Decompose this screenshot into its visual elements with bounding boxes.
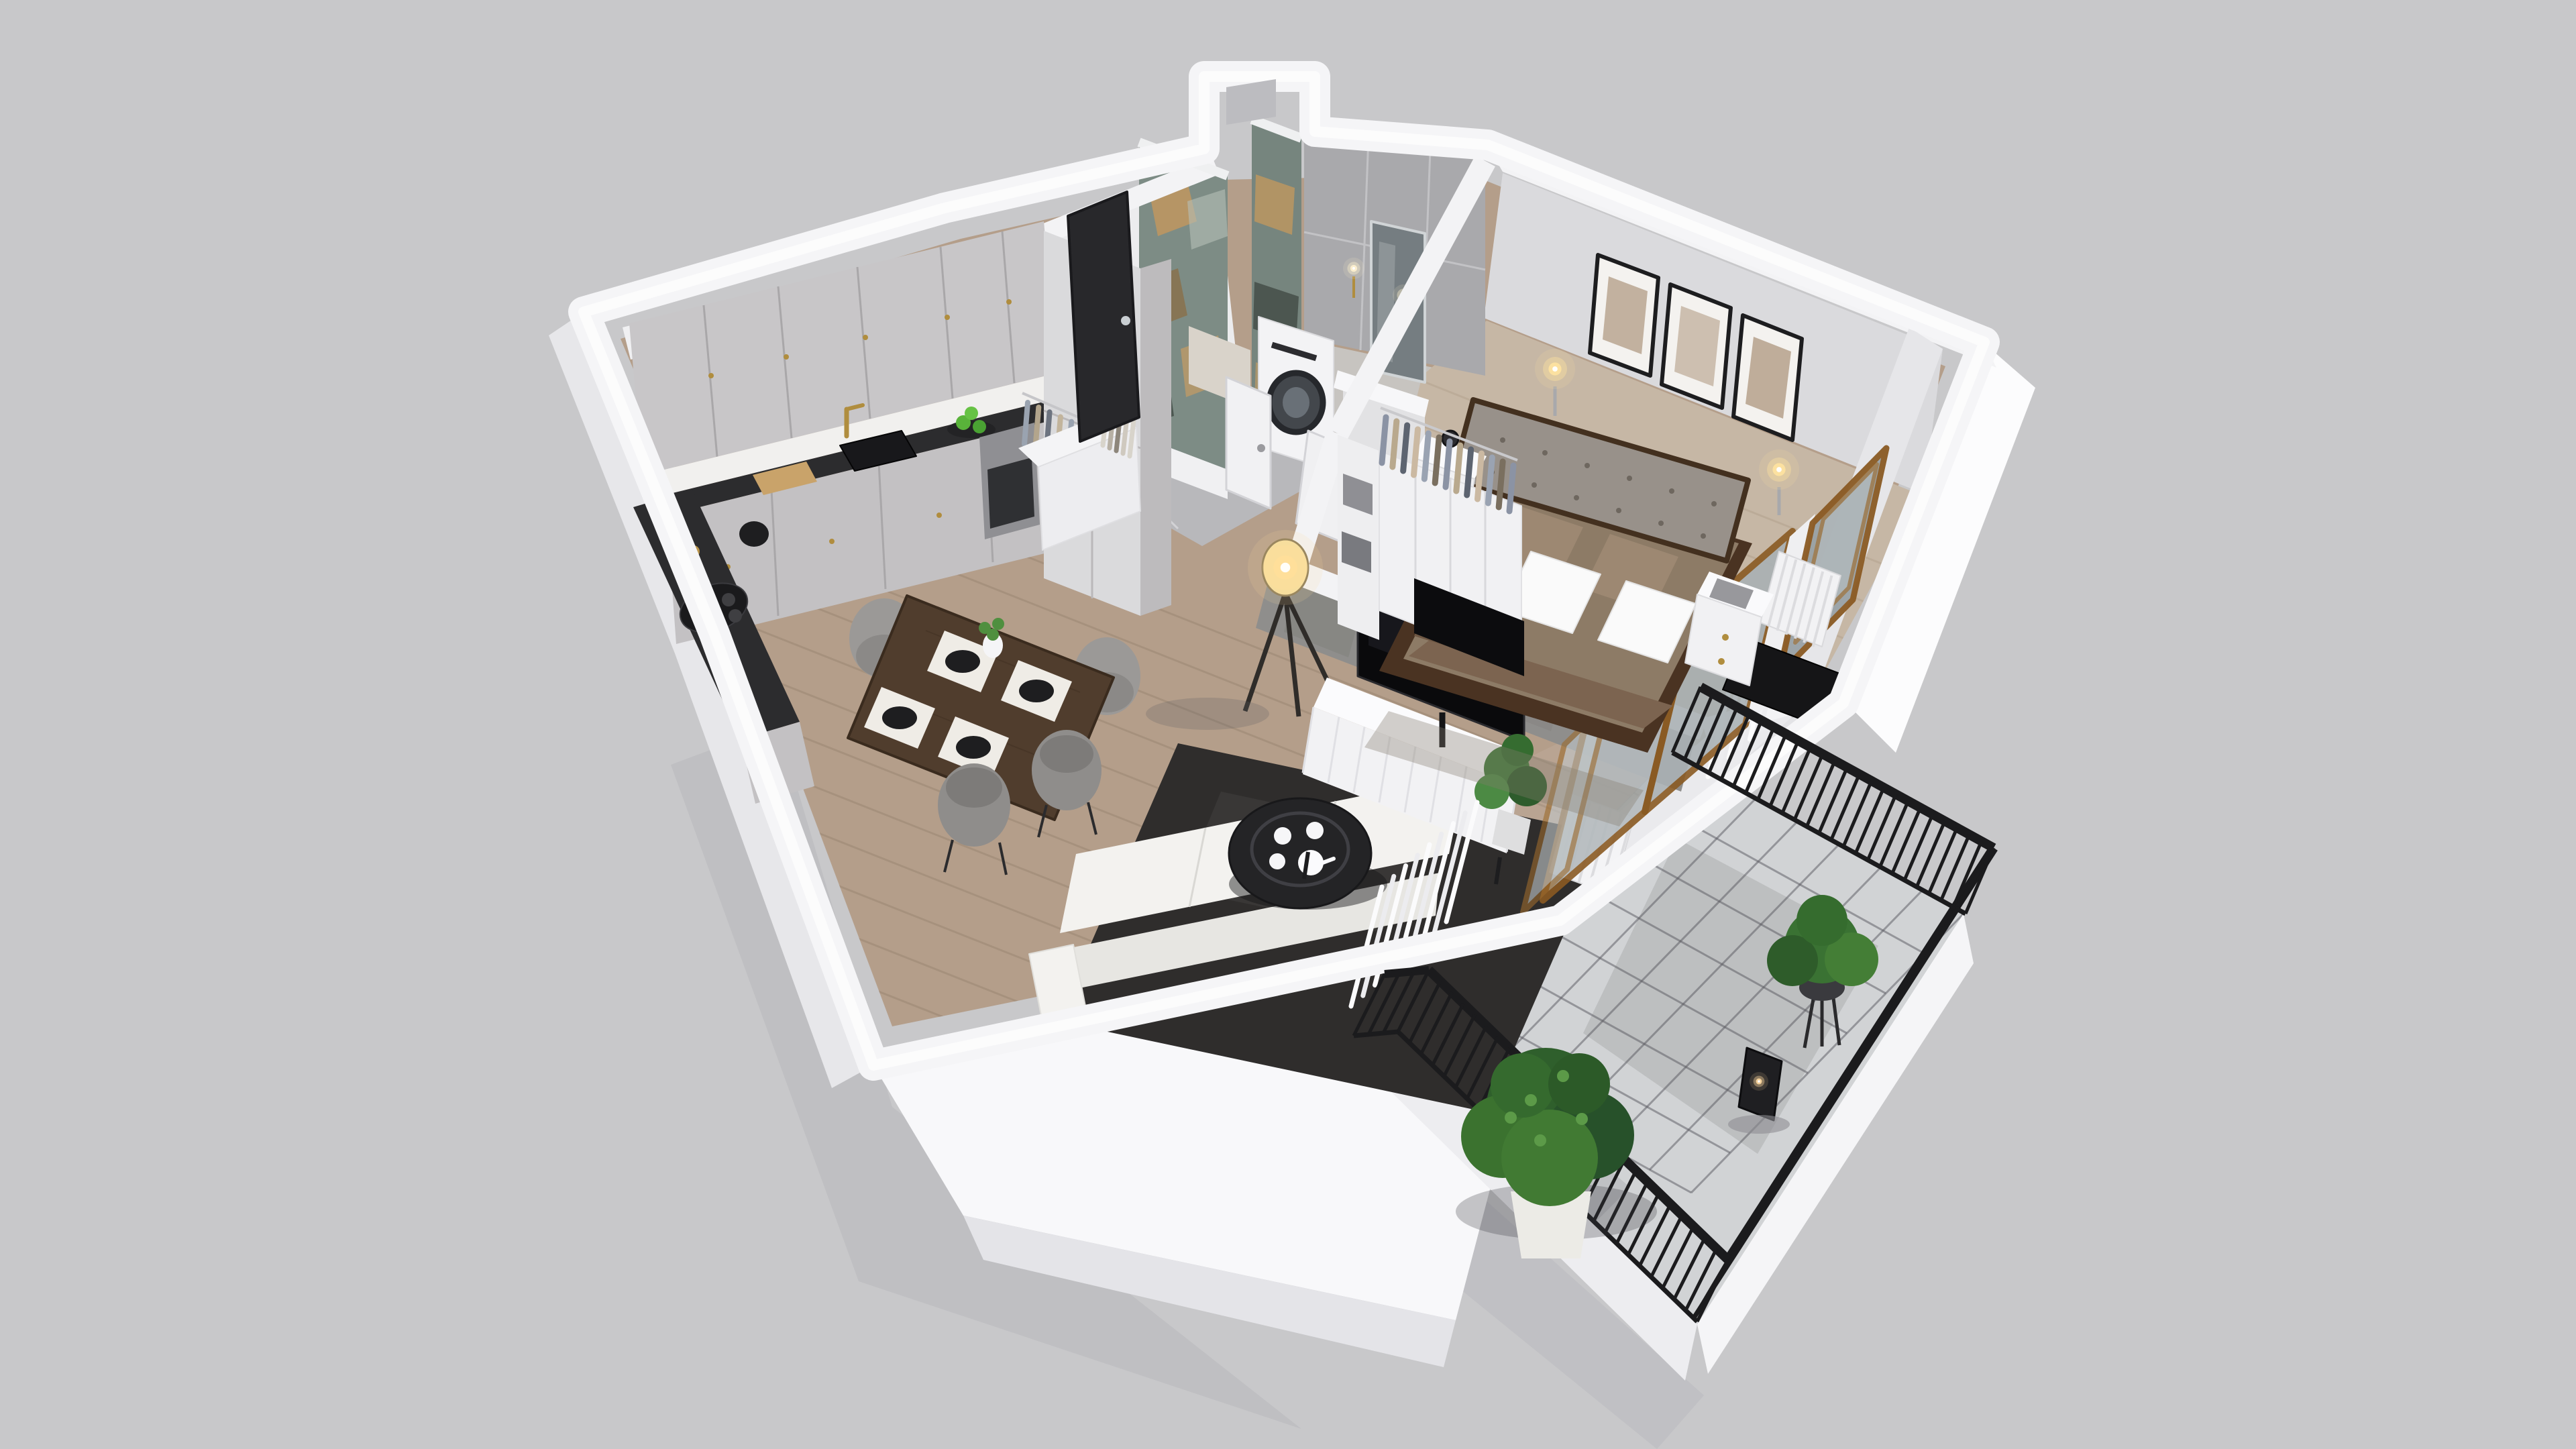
art-frame-3-print [1746,337,1791,419]
apple-3 [965,407,978,420]
apartment-3d-floorplan-render [0,0,2576,1449]
tall-cabinet-side [1140,259,1171,616]
tripod-lamp-glow [1248,530,1323,605]
lantern-candle-glow [1750,1072,1768,1091]
teacup-1 [1274,827,1291,845]
teacup-2 [1306,822,1324,839]
teacup-3 [1269,853,1285,869]
washer-door-inner [1283,387,1309,418]
bed-sconce-left-glow [1535,349,1575,389]
bathroom-door-handle [1257,444,1265,452]
coffee-machine-front [987,458,1034,529]
front-door-handle [1121,316,1130,325]
bush-foliage-5 [1491,1053,1555,1118]
plate-1 [945,650,980,673]
bath-sconce-1-glow [1343,258,1364,279]
plate-2 [1019,680,1054,702]
lamp-floor-shadow [1146,698,1269,730]
coffee-table [1229,798,1371,908]
teapot [1298,850,1324,875]
plate-3 [882,706,917,729]
dining-chair-br-seat [1040,735,1093,773]
front-door [1068,192,1139,441]
floorplan-svg [0,0,2576,1449]
bathroom-door [1226,377,1271,508]
kettle [739,521,769,547]
gravel-tray [1728,1115,1790,1134]
bed-sconce-right-glow [1759,449,1799,490]
dining-chair-bl-seat [946,767,1002,808]
plate-4 [956,736,991,759]
apple-2 [973,420,986,433]
bush-foliage-6 [1548,1053,1610,1115]
stand-plant-foliage-4 [1796,895,1847,946]
